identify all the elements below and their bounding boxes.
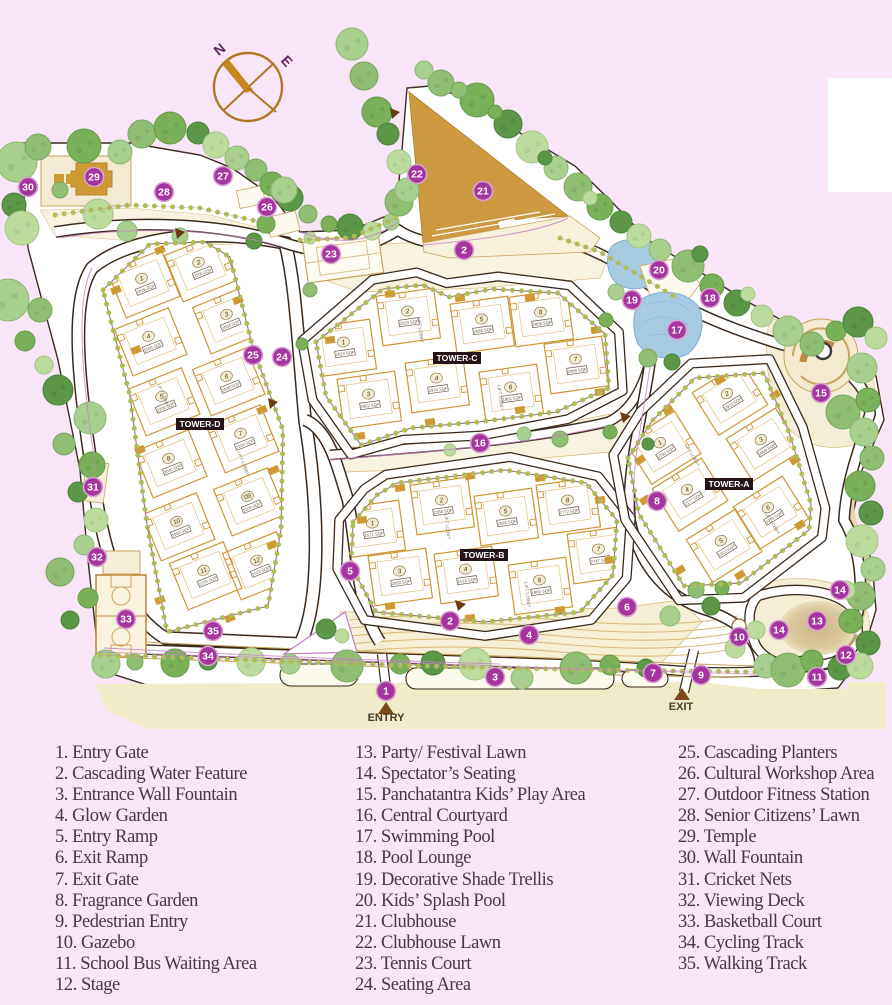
svg-text:17: 17 bbox=[671, 325, 683, 337]
svg-text:20: 20 bbox=[653, 265, 665, 277]
svg-text:25: 25 bbox=[247, 350, 259, 362]
svg-text:2: 2 bbox=[447, 616, 453, 628]
svg-text:2: 2 bbox=[461, 245, 467, 257]
svg-text:5: 5 bbox=[347, 566, 353, 578]
svg-text:14: 14 bbox=[773, 625, 785, 637]
svg-text:16: 16 bbox=[474, 438, 486, 450]
svg-text:13: 13 bbox=[811, 616, 823, 628]
svg-text:7: 7 bbox=[650, 668, 656, 680]
svg-text:EXIT: EXIT bbox=[669, 701, 694, 713]
svg-text:28: 28 bbox=[158, 187, 170, 199]
svg-text:14: 14 bbox=[834, 585, 846, 597]
svg-text:9: 9 bbox=[698, 670, 704, 682]
svg-text:29: 29 bbox=[88, 172, 100, 184]
svg-text:ENTRY: ENTRY bbox=[368, 712, 406, 724]
svg-text:3: 3 bbox=[492, 672, 498, 684]
svg-text:8: 8 bbox=[654, 496, 660, 508]
svg-text:TOWER-C: TOWER-C bbox=[437, 353, 478, 363]
svg-text:33: 33 bbox=[120, 614, 132, 626]
svg-text:24: 24 bbox=[276, 352, 288, 364]
svg-text:22: 22 bbox=[411, 169, 423, 181]
svg-text:4: 4 bbox=[526, 630, 532, 642]
svg-text:34: 34 bbox=[202, 651, 214, 663]
svg-text:TOWER-A: TOWER-A bbox=[709, 479, 750, 489]
svg-text:32: 32 bbox=[91, 552, 103, 564]
svg-text:21: 21 bbox=[477, 186, 489, 198]
svg-text:10: 10 bbox=[733, 632, 745, 644]
svg-text:11: 11 bbox=[811, 672, 822, 684]
svg-text:TOWER-B: TOWER-B bbox=[464, 550, 505, 560]
svg-text:19: 19 bbox=[626, 295, 638, 307]
svg-text:18: 18 bbox=[704, 293, 716, 305]
svg-text:TOWER-D: TOWER-D bbox=[180, 419, 221, 429]
svg-text:1: 1 bbox=[383, 686, 389, 698]
svg-text:23: 23 bbox=[325, 249, 337, 261]
svg-text:12: 12 bbox=[840, 650, 852, 662]
svg-text:15: 15 bbox=[815, 388, 827, 400]
svg-text:31: 31 bbox=[87, 482, 99, 494]
svg-text:26: 26 bbox=[261, 202, 273, 214]
svg-text:27: 27 bbox=[217, 171, 229, 183]
svg-text:30: 30 bbox=[22, 182, 34, 194]
svg-text:6: 6 bbox=[624, 602, 630, 614]
svg-text:35: 35 bbox=[207, 626, 219, 638]
